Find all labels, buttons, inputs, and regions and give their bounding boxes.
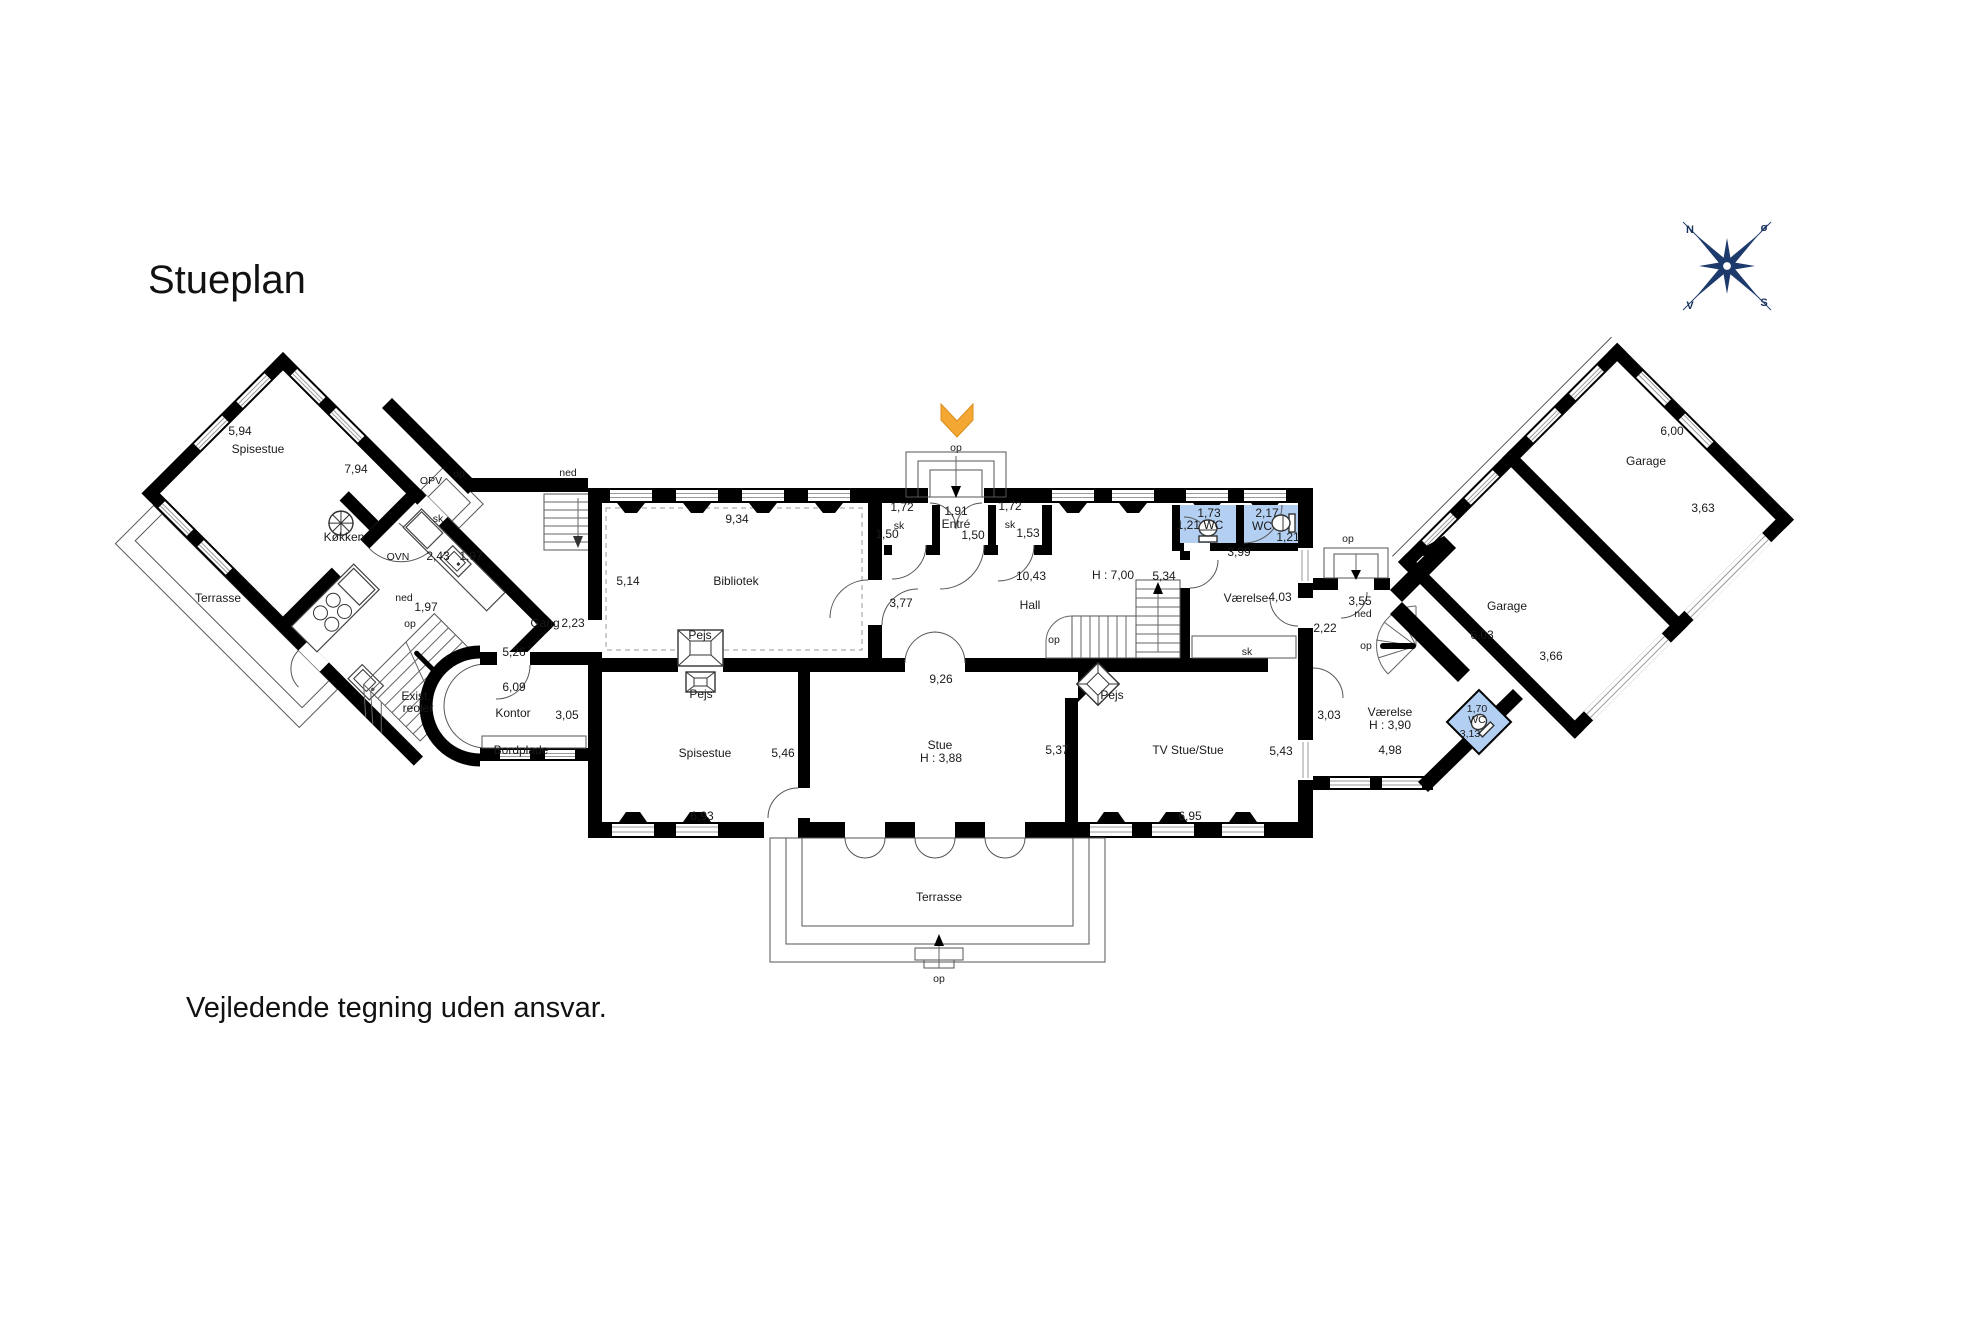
label-dim-377: 3,77 xyxy=(889,596,913,610)
label-room-garage-1: Garage xyxy=(1487,599,1527,613)
label-dim-693: 6,93 xyxy=(690,809,714,823)
label-area-terrasse-main: Terrasse xyxy=(916,890,962,904)
label-terrace-op: op xyxy=(933,973,945,985)
label-dim-534: 5,34 xyxy=(1152,569,1176,583)
label-closet-sk3: sk xyxy=(1242,646,1253,658)
label-dim-197b: 1,97 xyxy=(414,600,438,614)
label-dim-spisestue-width: 5,94 xyxy=(228,424,252,438)
label-fixture-opv: OPV xyxy=(420,475,442,487)
label-dim-537: 5,37 xyxy=(1045,743,1069,757)
label-dim-gang-223: 2,23 xyxy=(561,616,585,630)
label-room-garage-2: Garage xyxy=(1626,454,1666,468)
label-dim-514: 5,14 xyxy=(616,574,640,588)
label-closet-sk2: sk xyxy=(1005,519,1016,531)
label-dim-603: 6,03 xyxy=(1470,628,1494,642)
label-dim-546: 5,46 xyxy=(771,746,795,760)
label-dim-303: 3,03 xyxy=(1317,708,1341,722)
label-dim-wc3-313: 3,13 xyxy=(1460,728,1481,740)
label-dim-543: 5,43 xyxy=(1269,744,1293,758)
label-room-stue: Stue xyxy=(928,738,953,752)
label-dim-403: 4,03 xyxy=(1268,590,1292,604)
label-dim-600: 6,00 xyxy=(1660,424,1684,438)
label-dim-934: 9,34 xyxy=(725,512,749,526)
label-dim-h700: H : 7,00 xyxy=(1092,568,1134,582)
label-dim-399: 3,99 xyxy=(1227,545,1251,559)
label-dim-243: 2,43 xyxy=(426,549,450,563)
entrance-marker-icon xyxy=(941,404,973,437)
right-entry-steps xyxy=(1324,548,1388,580)
label-dim-wc2-217: 2,17 xyxy=(1255,506,1279,520)
label-dim-sk2-153: 1,53 xyxy=(1016,526,1040,540)
label-dim-entre-150: 1,50 xyxy=(961,528,985,542)
label-dim-305: 3,05 xyxy=(555,708,579,722)
label-entry-op-kitchen: op xyxy=(453,468,465,480)
label-room-gang: Gang xyxy=(530,616,559,630)
label-dim-363: 3,63 xyxy=(1691,501,1715,515)
basement-stair-ned xyxy=(544,494,592,550)
label-dim-926: 9,26 xyxy=(929,672,953,686)
label-dim-197a: 1,97 xyxy=(459,549,483,563)
label-dim-h390: H : 3,90 xyxy=(1369,718,1411,732)
label-area-terrasse-wing: Terrasse xyxy=(195,591,241,605)
label-stair-op-hall: op xyxy=(1048,634,1060,646)
label-dim-sk1-150: 1,50 xyxy=(875,527,899,541)
label-dim-498: 4,98 xyxy=(1378,743,1402,757)
label-room-wc3: WC xyxy=(1468,714,1486,726)
label-stair-ned-right: ned xyxy=(1354,608,1372,620)
compass-label-east: ø xyxy=(1761,222,1768,234)
label-fixture-pejs-bibliotek: Pejs xyxy=(688,628,711,642)
label-room-kontor: Kontor xyxy=(495,706,530,720)
label-dim-609: 6,09 xyxy=(502,680,526,694)
label-fixture-pejs-tvstue: Pejs xyxy=(1100,688,1123,702)
label-dim-526: 5,26 xyxy=(502,645,526,659)
label-room-wc1: 1,21 WC xyxy=(1177,518,1224,532)
label-dim-222: 2,22 xyxy=(1313,621,1337,635)
label-room-vaerelse-2: Værelse xyxy=(1368,705,1413,719)
label-room-wc2: WC xyxy=(1252,519,1272,533)
label-note-reoler: reoler xyxy=(403,701,434,715)
label-dim-1043: 10,43 xyxy=(1016,569,1046,583)
label-stair-ned-bibliotek: ned xyxy=(559,467,577,479)
label-room-spisestue-main: Spisestue xyxy=(679,746,732,760)
label-room-spisestue-wing: Spisestue xyxy=(232,442,285,456)
label-room-bibliotek: Bibliotek xyxy=(713,574,759,588)
label-fixture-bordplade: Bordplade xyxy=(494,743,549,757)
compass-label-north: N xyxy=(1686,224,1694,236)
floor-plan-drawing: N ø V S 5,94Spisestue7,94OPVKøkkenOVNsk2… xyxy=(0,0,1984,1323)
label-dim-355: 3,55 xyxy=(1348,594,1372,608)
label-dim-sk2-172: 1,72 xyxy=(998,499,1022,513)
label-entry-op-right: op xyxy=(1342,533,1354,545)
label-fixture-ovn: OVN xyxy=(387,551,410,563)
label-stair-ned-kitchen: ned xyxy=(395,592,413,604)
label-room-kokken: Køkken xyxy=(324,530,365,544)
label-entry-op-main: op xyxy=(950,442,962,454)
label-room-hall: Hall xyxy=(1020,598,1041,612)
label-stair-op-right: op xyxy=(1360,640,1372,652)
label-fixture-pejs-spisestue: Pejs xyxy=(689,687,712,701)
label-stair-op-kitchen: op xyxy=(404,618,416,630)
label-dim-entre-191: 1,91 xyxy=(944,504,968,518)
label-dim-h388: H : 3,88 xyxy=(920,751,962,765)
label-room-vaerelse-1: Værelse xyxy=(1224,591,1269,605)
label-dim-366: 3,66 xyxy=(1539,649,1563,663)
label-dim-sk1-172: 1,72 xyxy=(890,500,914,514)
label-closet-sk-kitchen: sk xyxy=(433,513,444,525)
label-dim-spisestue-length: 7,94 xyxy=(344,462,368,476)
compass-label-south: S xyxy=(1760,297,1767,309)
label-dim-695: 6,95 xyxy=(1178,809,1202,823)
compass-label-west: V xyxy=(1686,300,1694,312)
compass-rose: N ø V S xyxy=(1683,222,1771,312)
label-room-tvstue: TV Stue/Stue xyxy=(1152,743,1224,757)
label-dim-wc2-121: 1,21 xyxy=(1276,530,1300,544)
floor-plan-page: Stueplan Vejledende tegning uden ansvar. xyxy=(0,0,1984,1323)
